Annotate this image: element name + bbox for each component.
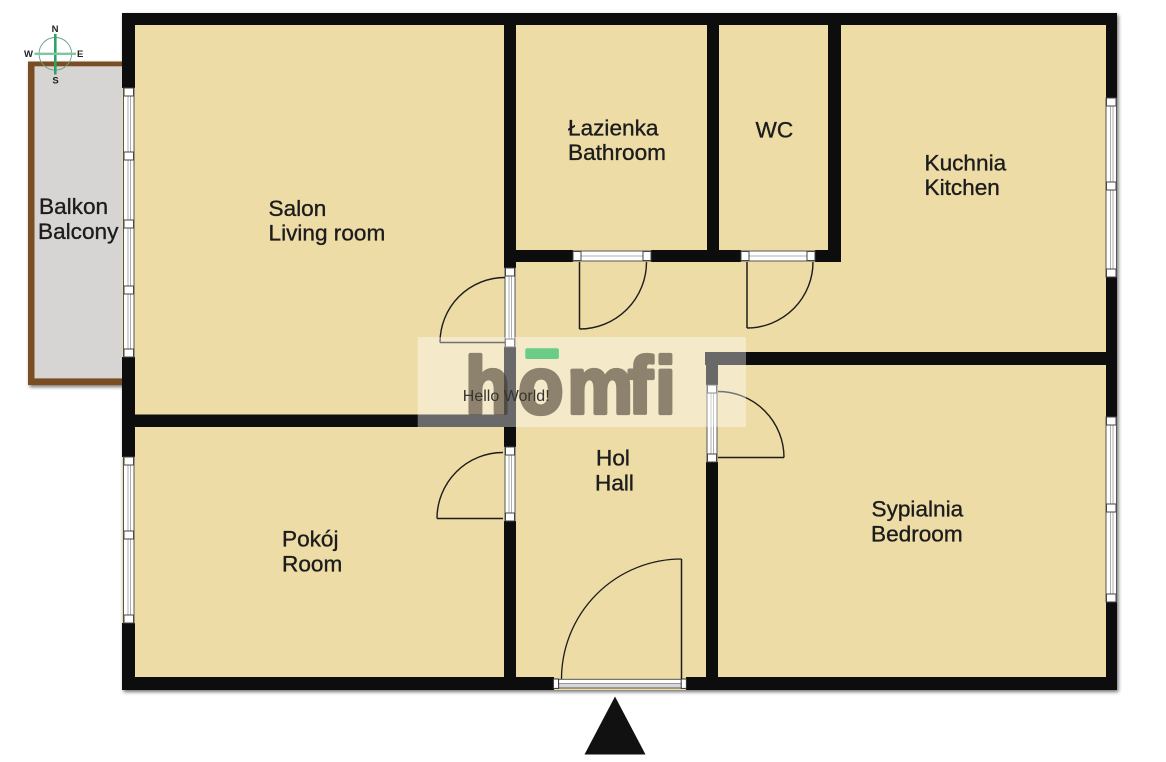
svg-text:Balkon: Balkon <box>39 194 108 219</box>
svg-text:Living room: Living room <box>269 221 386 246</box>
svg-text:Room: Room <box>282 552 342 577</box>
svg-text:Pokój: Pokój <box>282 527 339 552</box>
svg-text:Hall: Hall <box>595 471 634 496</box>
svg-text:Bathroom: Bathroom <box>568 140 666 165</box>
svg-text:N: N <box>52 24 59 35</box>
svg-text:W: W <box>24 49 33 60</box>
svg-text:Sypialnia: Sypialnia <box>872 497 964 522</box>
svg-text:Łazienka: Łazienka <box>568 116 659 141</box>
svg-text:homfi: homfi <box>465 341 675 431</box>
svg-text:Kuchnia: Kuchnia <box>925 151 1007 176</box>
svg-text:S: S <box>52 76 58 87</box>
svg-text:E: E <box>77 49 83 60</box>
svg-text:Kitchen: Kitchen <box>925 175 1000 200</box>
svg-text:Salon: Salon <box>269 196 327 221</box>
svg-text:Balcony: Balcony <box>38 219 119 244</box>
svg-text:WC: WC <box>756 118 794 143</box>
svg-text:Hol: Hol <box>596 446 630 471</box>
svg-text:Bedroom: Bedroom <box>871 522 963 547</box>
